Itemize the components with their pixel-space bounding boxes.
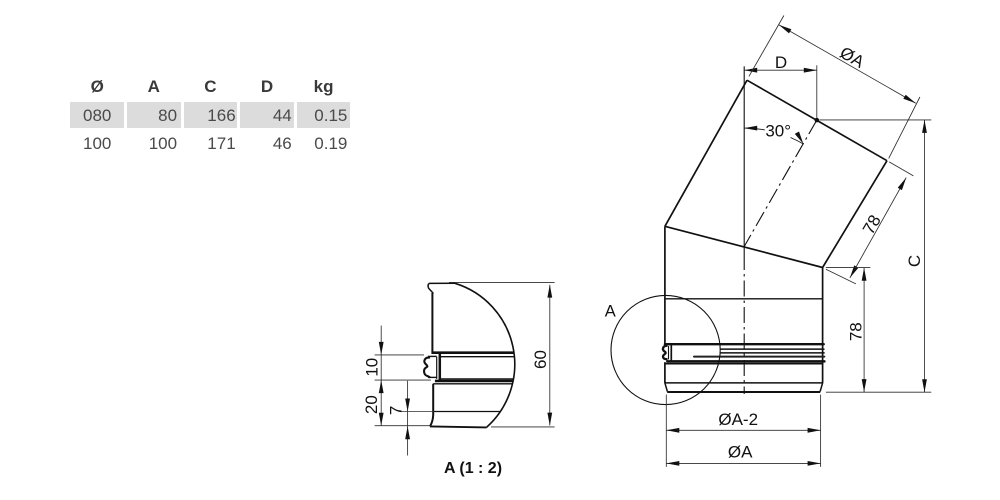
svg-text:ØA: ØA	[837, 43, 868, 72]
svg-text:7: 7	[386, 406, 405, 415]
svg-text:ØA-2: ØA-2	[718, 410, 758, 429]
svg-text:10: 10	[362, 358, 381, 377]
svg-text:30°: 30°	[765, 122, 791, 141]
svg-text:ØA: ØA	[728, 443, 753, 462]
svg-text:60: 60	[531, 350, 550, 369]
svg-text:A: A	[605, 302, 616, 320]
svg-text:C: C	[905, 255, 924, 267]
svg-text:A (1 : 2): A (1 : 2)	[444, 460, 502, 477]
svg-text:20: 20	[362, 395, 381, 414]
svg-text:D: D	[775, 53, 787, 72]
svg-text:78: 78	[846, 322, 865, 341]
svg-text:78: 78	[859, 212, 885, 238]
